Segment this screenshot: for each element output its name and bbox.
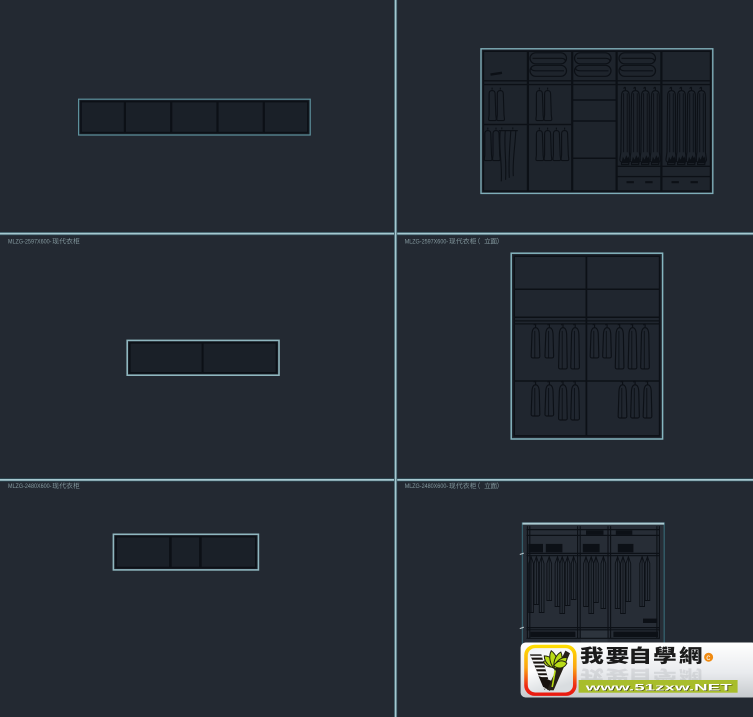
- svg-text:www.51zxw.NET: www.51zxw.NET: [584, 682, 732, 693]
- svg-text:c: c: [706, 653, 710, 662]
- svg-text:MLZG-2597X600-: MLZG-2597X600-: [8, 239, 52, 246]
- svg-text:MLZG-2480X600-: MLZG-2480X600-: [8, 483, 52, 490]
- svg-text:MLZG-2597X600-: MLZG-2597X600-: [405, 239, 449, 246]
- svg-text:MLZG-2480X600-: MLZG-2480X600-: [405, 483, 449, 490]
